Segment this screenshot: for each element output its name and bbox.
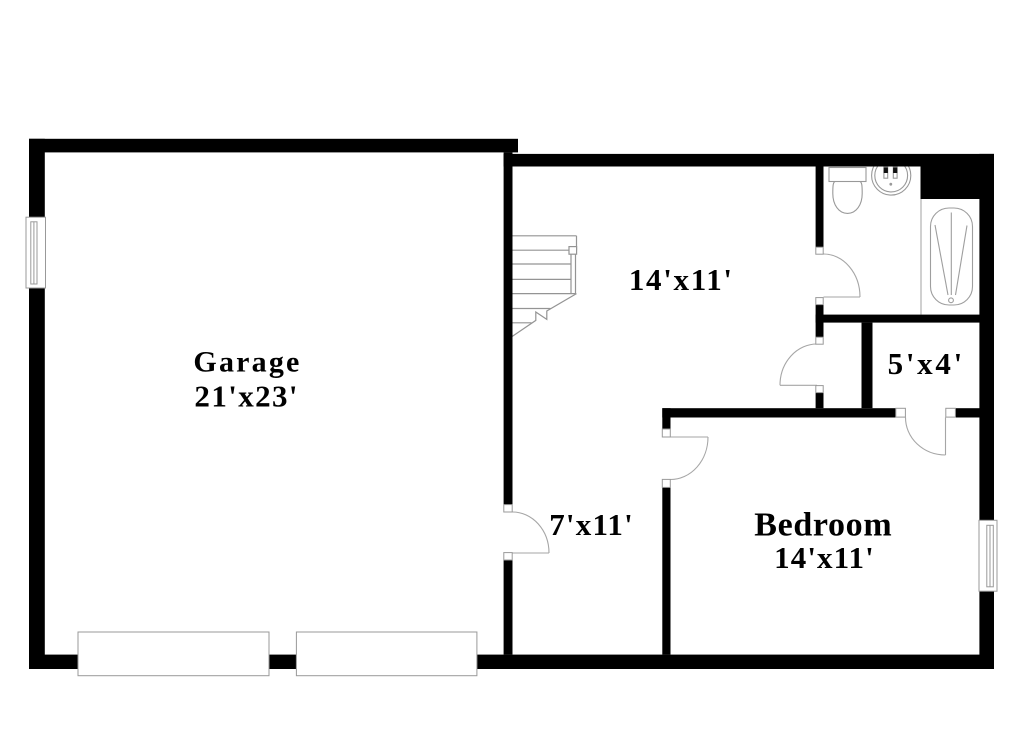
svg-text:14'x11': 14'x11'	[774, 540, 875, 575]
svg-text:21'x23': 21'x23'	[194, 379, 299, 414]
svg-text:Garage: Garage	[193, 346, 301, 379]
svg-text:5'x4': 5'x4'	[888, 346, 965, 381]
svg-text:Bedroom: Bedroom	[754, 507, 892, 544]
svg-text:14'x11': 14'x11'	[629, 262, 734, 297]
svg-text:7'x11': 7'x11'	[549, 507, 634, 542]
